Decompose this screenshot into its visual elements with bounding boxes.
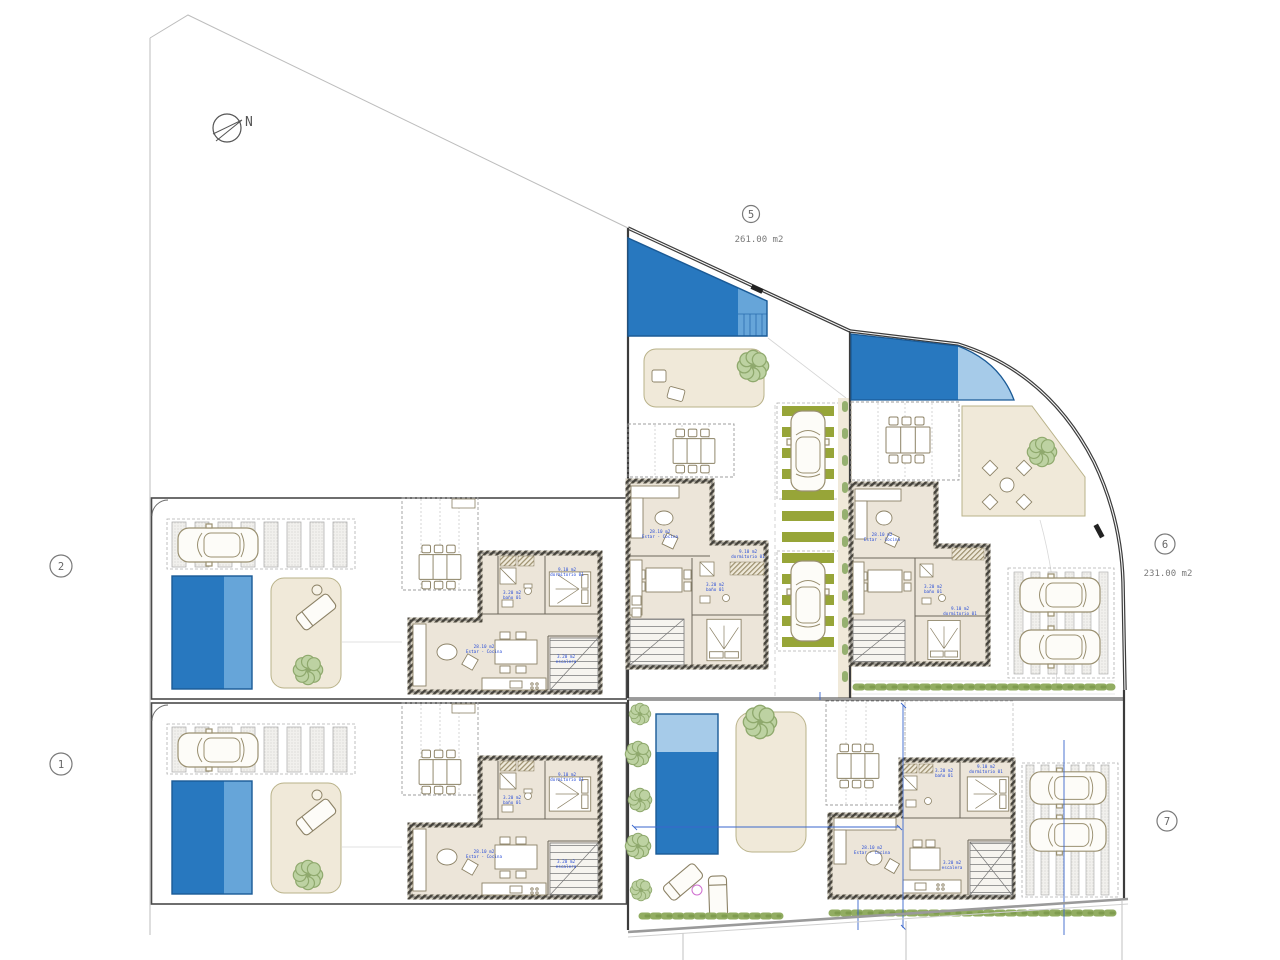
bed (707, 619, 741, 660)
tree (1027, 437, 1056, 466)
parked-car (787, 561, 829, 641)
plot-7: 9.10 m2 dormitorio 01 3.20 m2 baño 01 28… (625, 690, 1128, 960)
bath-label-name: baño 01 (935, 773, 954, 779)
plot-6-number: 6 (1162, 539, 1168, 551)
north-compass (213, 114, 242, 142)
bed (967, 777, 1008, 811)
gate-marker (751, 284, 764, 294)
plot-5-area: 261.00 m2 (735, 235, 784, 245)
hedge-row (851, 681, 1115, 694)
umbrella-marker (692, 885, 702, 895)
outdoor-dining-set (886, 417, 930, 463)
tree-column (625, 703, 652, 901)
plot-2-villa (152, 498, 627, 699)
plot-5-house: 28.10 m2 Estar - Cocina 3.20 m2 baño 01 … (628, 481, 766, 667)
living-label-name: Estar - Cocina (854, 850, 891, 856)
parked-car (1020, 626, 1100, 668)
plot-1-villa (152, 703, 627, 904)
stairs (853, 620, 905, 662)
stairs (970, 842, 1012, 895)
bedroom-label-name: dormitorio 01 (943, 611, 977, 617)
plot-7-parking (1022, 763, 1118, 897)
bath-label-name: baño 01 (924, 589, 943, 595)
north-label: N (245, 115, 253, 130)
bedroom-label-name: dormitorio 01 (731, 554, 765, 560)
driveway-strip (775, 331, 852, 698)
parked-car (1020, 574, 1100, 616)
plot-5-terrace (644, 349, 769, 407)
stairs-label-name: escalera (942, 865, 963, 871)
outdoor-dining-set (673, 429, 715, 473)
living-label-name: Estar - Cocina (642, 534, 679, 540)
plot-6: 28.10 m2 Estar - Cocina 3.20 m2 baño 01 … (850, 331, 1125, 694)
plot-2-number: 2 (58, 561, 64, 573)
tree (737, 350, 768, 381)
plot-6-pool (851, 334, 1014, 400)
plot-7-pool (656, 714, 718, 854)
stairs (630, 619, 684, 665)
sun-lounger (662, 862, 704, 902)
armchair (652, 370, 666, 382)
gate-marker (1094, 524, 1105, 539)
parked-car (787, 411, 829, 491)
site-plan-canvas: 9.10 m2 dormitorio 01 3.20 m2 baño 01 28… (0, 0, 1280, 960)
parked-car (1030, 768, 1106, 808)
parked-car (1030, 815, 1106, 855)
sun-lounger (708, 876, 727, 917)
round-table (1000, 478, 1014, 492)
plot-7-terrace (736, 705, 806, 852)
tree (743, 705, 776, 738)
plot-5-number: 5 (748, 209, 754, 221)
plot-7-number: 7 (1164, 816, 1170, 828)
bedroom-label-name: dormitorio 01 (969, 769, 1003, 775)
outdoor-dining-set (837, 744, 879, 788)
bath-label-name: baño 01 (706, 587, 725, 593)
living-label-name: Estar - Cocina (864, 537, 901, 543)
plot-1-number: 1 (58, 759, 64, 771)
plot-6-parking (1008, 568, 1114, 678)
plot-6-area: 231.00 m2 (1144, 569, 1193, 579)
plot-5-pool (628, 238, 767, 336)
plot-6-terrace (962, 406, 1085, 516)
bed (928, 620, 960, 659)
